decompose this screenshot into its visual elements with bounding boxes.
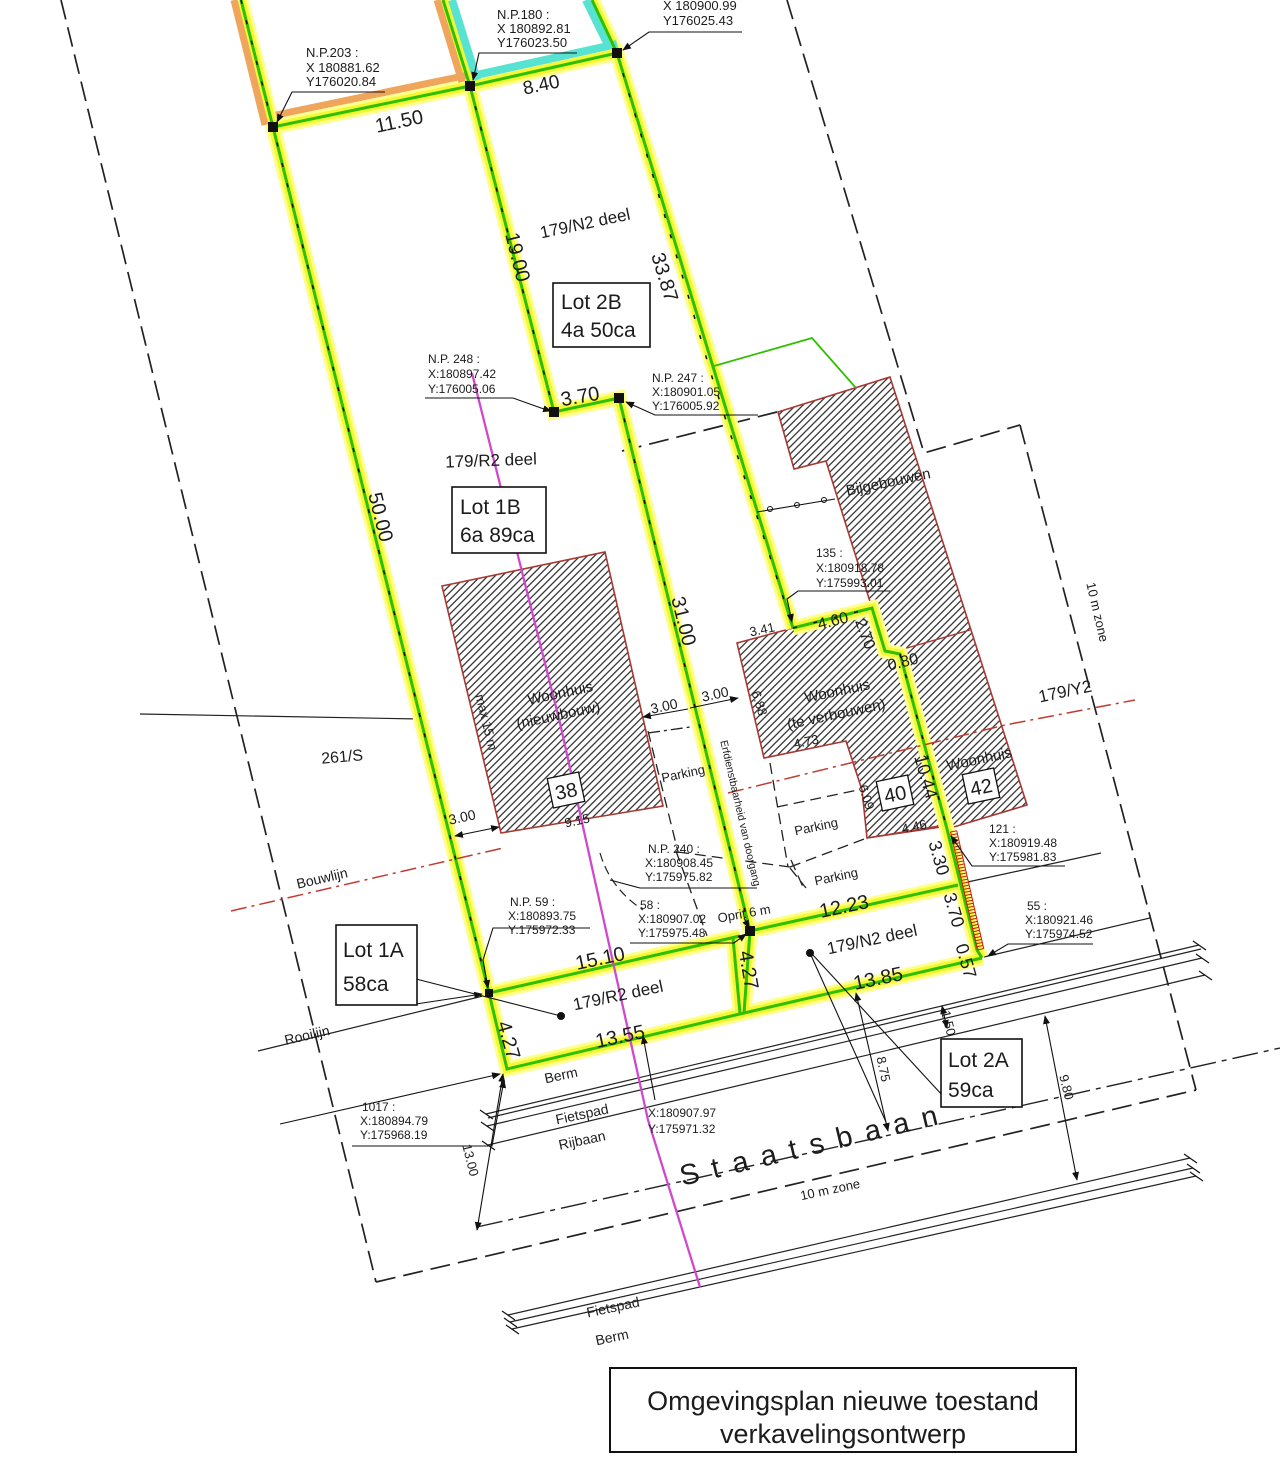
svg-text:N.P. 247 :: N.P. 247 : bbox=[652, 371, 704, 385]
svg-text:N.P. 59 :: N.P. 59 : bbox=[510, 895, 555, 909]
svg-text:Y176025.43: Y176025.43 bbox=[663, 13, 733, 28]
svg-text:121 :: 121 : bbox=[989, 822, 1016, 836]
svg-text:X 180900.99: X 180900.99 bbox=[663, 0, 737, 13]
svg-text:Omgevingsplan nieuwe toestand: Omgevingsplan nieuwe toestand bbox=[647, 1386, 1039, 1416]
svg-text:Y:175974.52: Y:175974.52 bbox=[1025, 927, 1093, 941]
svg-text:Y:175972.33: Y:175972.33 bbox=[508, 923, 576, 937]
svg-text:Lot 2A: Lot 2A bbox=[948, 1049, 1009, 1072]
svg-text:Y176020.84: Y176020.84 bbox=[306, 74, 376, 89]
svg-text:179/R2 deel: 179/R2 deel bbox=[445, 449, 537, 471]
svg-text:X 180881.62: X 180881.62 bbox=[306, 60, 380, 75]
svg-text:38: 38 bbox=[553, 779, 579, 805]
svg-text:X:180894.79: X:180894.79 bbox=[360, 1114, 428, 1128]
svg-text:X:180919.48: X:180919.48 bbox=[989, 836, 1057, 850]
svg-text:X:180893.75: X:180893.75 bbox=[508, 909, 576, 923]
svg-text:Y:175975.48: Y:175975.48 bbox=[638, 926, 706, 940]
svg-text:N.P. 248 :: N.P. 248 : bbox=[428, 352, 480, 366]
svg-text:X:180907.02: X:180907.02 bbox=[638, 912, 706, 926]
svg-text:X:180901.05: X:180901.05 bbox=[652, 385, 720, 399]
svg-text:Y:175981.83: Y:175981.83 bbox=[989, 850, 1057, 864]
svg-text:X:180897.42: X:180897.42 bbox=[428, 367, 496, 381]
svg-text:Y:175975.82: Y:175975.82 bbox=[645, 870, 713, 884]
svg-text:verkavelingsontwerp: verkavelingsontwerp bbox=[720, 1419, 966, 1449]
svg-text:135 :: 135 : bbox=[816, 546, 843, 560]
svg-text:Lot 2B: Lot 2B bbox=[561, 291, 622, 314]
svg-text:N.P.180 :: N.P.180 : bbox=[497, 7, 550, 22]
svg-text:Y:176005.06: Y:176005.06 bbox=[428, 382, 496, 396]
svg-text:N.P.203 :: N.P.203 : bbox=[306, 45, 359, 60]
svg-text:40: 40 bbox=[882, 782, 908, 808]
svg-text:Y176023.50: Y176023.50 bbox=[497, 35, 567, 50]
svg-text:261/S: 261/S bbox=[321, 747, 364, 768]
svg-text:42: 42 bbox=[968, 775, 994, 801]
svg-text:55 :: 55 : bbox=[1027, 899, 1047, 913]
svg-text:N.P. 240 :: N.P. 240 : bbox=[648, 842, 700, 856]
svg-text:6a 89ca: 6a 89ca bbox=[460, 524, 535, 547]
svg-text:Y:175993.01: Y:175993.01 bbox=[816, 576, 884, 590]
svg-text:Lot 1A: Lot 1A bbox=[343, 939, 404, 962]
svg-text:X:180908.45: X:180908.45 bbox=[645, 856, 713, 870]
svg-text:X:180918.78: X:180918.78 bbox=[816, 561, 884, 575]
svg-text:58 :: 58 : bbox=[640, 898, 660, 912]
svg-text:4a 50ca: 4a 50ca bbox=[561, 319, 636, 342]
svg-text:X:180907.97: X:180907.97 bbox=[648, 1106, 716, 1120]
svg-text:58ca: 58ca bbox=[343, 973, 389, 996]
svg-text:X:180921.46: X:180921.46 bbox=[1025, 913, 1093, 927]
svg-text:Lot 1B: Lot 1B bbox=[460, 496, 521, 519]
svg-text:Y:175971.32: Y:175971.32 bbox=[648, 1122, 716, 1136]
svg-text:1017 :: 1017 : bbox=[362, 1100, 395, 1114]
svg-text:Y:175968.19: Y:175968.19 bbox=[360, 1128, 428, 1142]
svg-text:59ca: 59ca bbox=[948, 1079, 994, 1102]
svg-text:Y:176005.92: Y:176005.92 bbox=[652, 399, 720, 413]
svg-text:X 180892.81: X 180892.81 bbox=[497, 21, 571, 36]
